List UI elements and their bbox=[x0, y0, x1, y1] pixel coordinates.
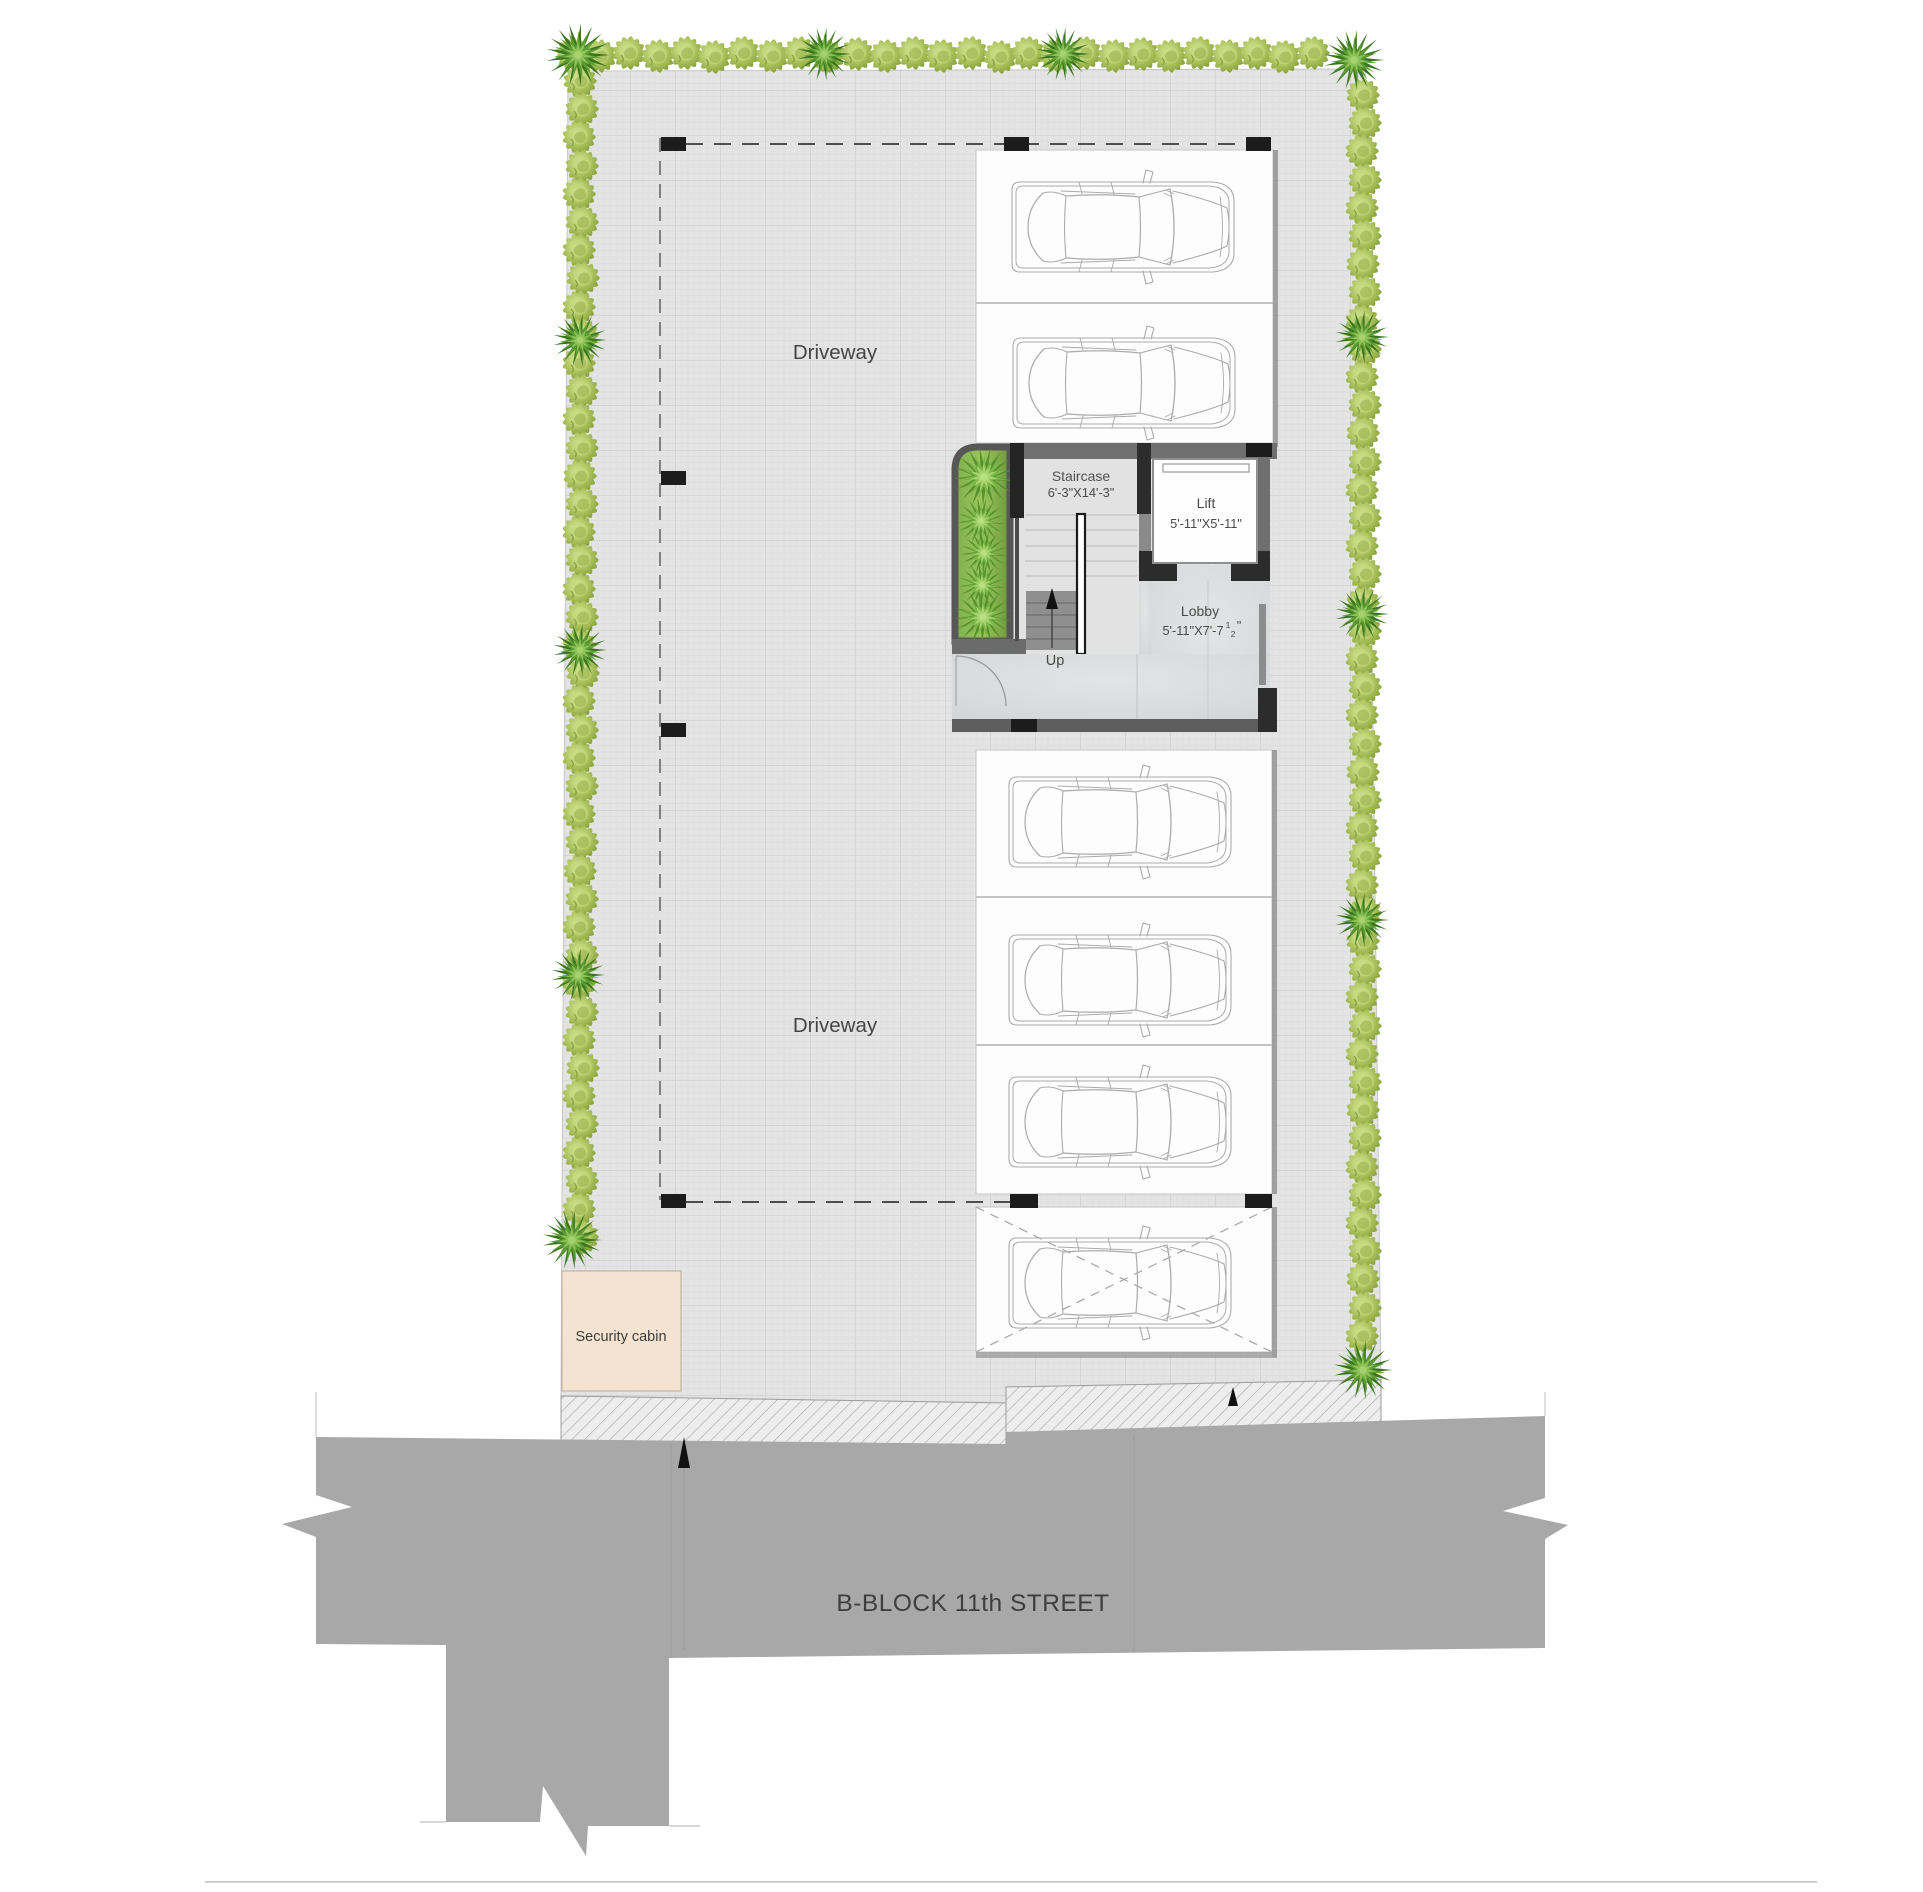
svg-text:Staircase: Staircase bbox=[1052, 468, 1111, 484]
svg-text:5'-11"X7'-7: 5'-11"X7'-7 bbox=[1162, 623, 1223, 638]
svg-text:Lift: Lift bbox=[1197, 495, 1216, 511]
svg-text:6'-3"X14'-3": 6'-3"X14'-3" bbox=[1048, 485, 1115, 500]
svg-text:5'-11"X5'-11": 5'-11"X5'-11" bbox=[1170, 516, 1242, 531]
svg-text:Driveway: Driveway bbox=[793, 1014, 878, 1037]
svg-text:Security cabin: Security cabin bbox=[575, 1329, 666, 1345]
svg-text:Up: Up bbox=[1046, 653, 1065, 669]
svg-text:B-BLOCK 11th STREET: B-BLOCK 11th STREET bbox=[836, 1590, 1109, 1617]
svg-text:Lobby: Lobby bbox=[1181, 603, 1219, 619]
svg-text:Driveway: Driveway bbox=[793, 341, 878, 364]
svg-text:": " bbox=[1237, 618, 1242, 633]
svg-text:2: 2 bbox=[1231, 629, 1236, 639]
